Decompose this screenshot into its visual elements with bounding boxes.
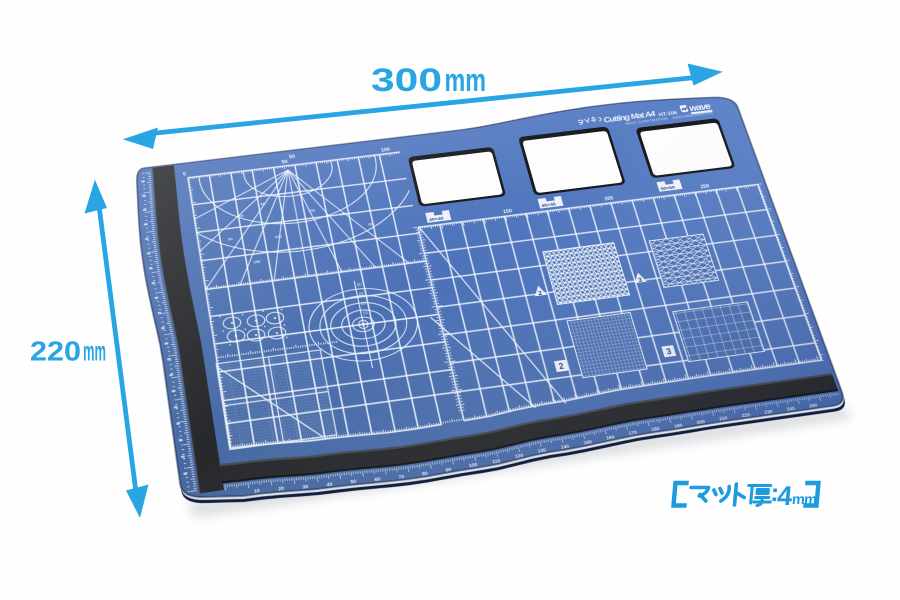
svg-text:220: 220 bbox=[30, 336, 81, 367]
svg-text:mm: mm bbox=[791, 492, 817, 508]
svg-text:mm: mm bbox=[83, 336, 106, 367]
svg-text:mm: mm bbox=[445, 62, 487, 98]
svg-text:300: 300 bbox=[371, 62, 442, 98]
